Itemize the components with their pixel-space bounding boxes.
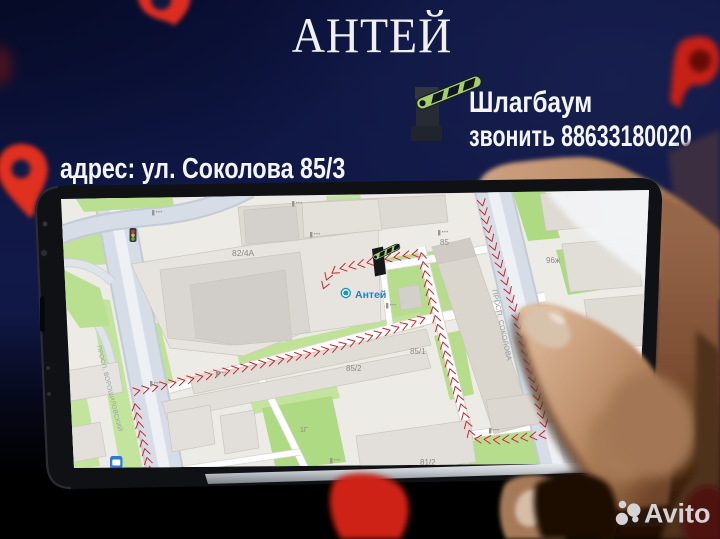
svg-text:85: 85 [440, 238, 449, 247]
svg-text:82/4А: 82/4А [232, 248, 255, 258]
svg-text:85/2: 85/2 [346, 364, 362, 373]
svg-text:Avito: Avito [644, 499, 711, 529]
svg-text:Антей: Антей [355, 289, 386, 301]
svg-text:85/1: 85/1 [410, 347, 426, 356]
svg-text:1Г: 1Г [300, 427, 308, 434]
svg-text:96ж: 96ж [546, 256, 561, 265]
